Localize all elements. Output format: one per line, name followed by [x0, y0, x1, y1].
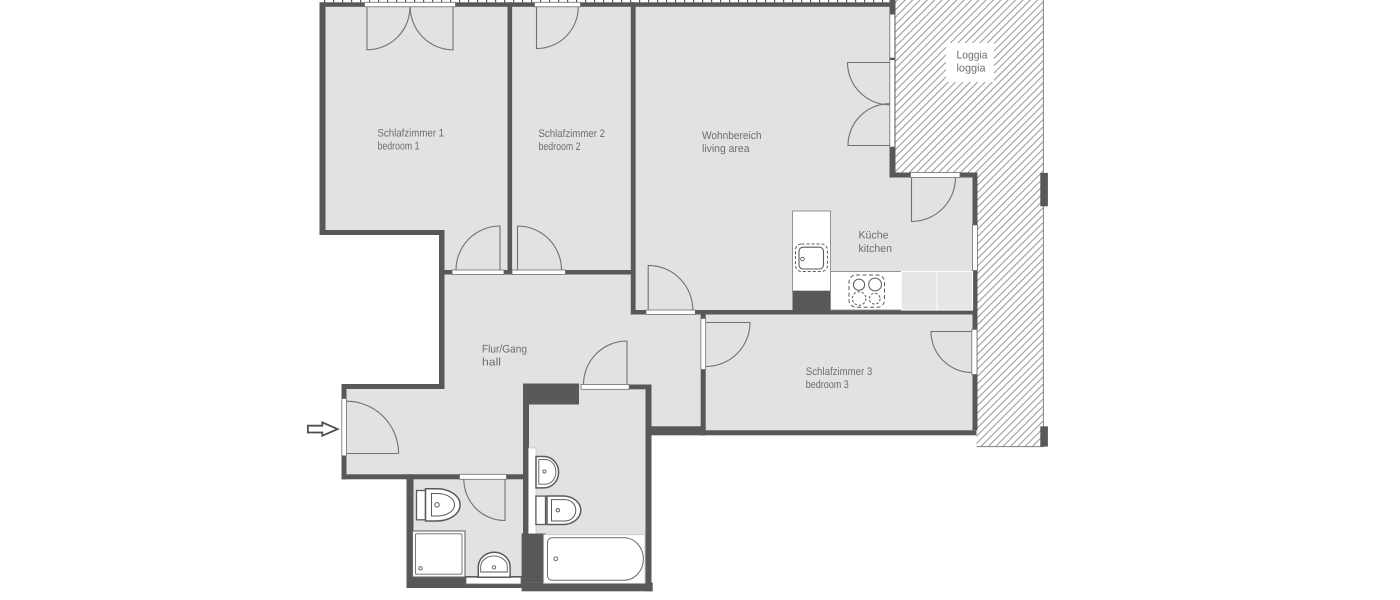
svg-text:Schlafzimmer 3: Schlafzimmer 3 — [806, 366, 873, 378]
svg-text:living area: living area — [702, 143, 750, 155]
svg-text:Loggia: Loggia — [957, 49, 989, 61]
svg-text:kitchen: kitchen — [859, 243, 893, 255]
svg-text:Schlafzimmer 2: Schlafzimmer 2 — [539, 128, 606, 140]
svg-text:bedroom 3: bedroom 3 — [806, 379, 849, 391]
svg-text:Küche: Küche — [859, 230, 889, 242]
svg-text:Schlafzimmer 1: Schlafzimmer 1 — [378, 128, 445, 140]
svg-text:loggia: loggia — [957, 62, 987, 74]
svg-text:hall: hall — [482, 356, 501, 368]
svg-text:bedroom 1: bedroom 1 — [378, 141, 420, 153]
svg-text:bedroom 2: bedroom 2 — [539, 141, 581, 153]
svg-text:Wohnbereich: Wohnbereich — [702, 130, 762, 142]
svg-text:Flur/Gang: Flur/Gang — [482, 344, 527, 356]
